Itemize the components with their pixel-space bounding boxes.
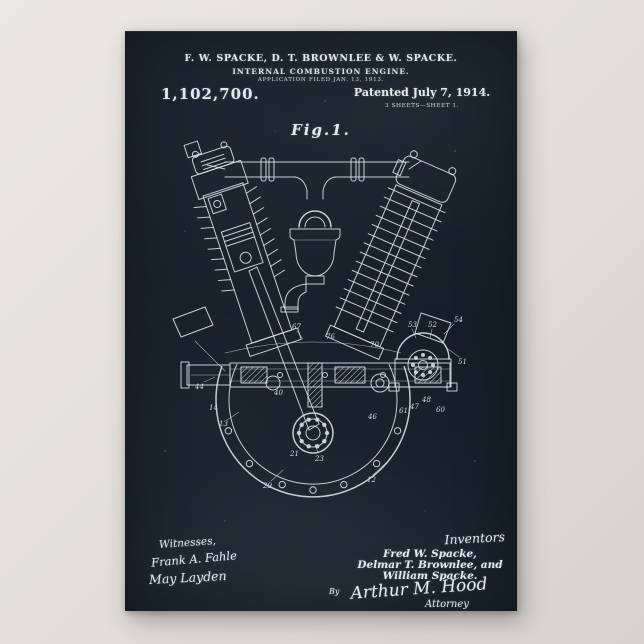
poster-mockup-scene: F. W. SPACKE, D. T. BROWNLEE & W. SPACKE… [0,0,644,644]
svg-text:67: 67 [292,323,301,331]
svg-text:48: 48 [421,396,431,404]
carburetor [281,191,340,312]
svg-text:76: 76 [326,333,335,341]
svg-text:70: 70 [370,341,379,349]
crankpin-bearing [293,413,333,453]
svg-text:46: 46 [367,413,377,421]
svg-text:51: 51 [458,358,467,366]
svg-text:40: 40 [273,389,283,397]
patent-poster: F. W. SPACKE, D. T. BROWNLEE & W. SPACKE… [125,31,517,611]
engine-patent-drawing: 12 13 14 21 23 29 40 44 46 47 48 51 52 [125,31,517,611]
svg-text:21: 21 [289,450,299,458]
right-cylinder [322,146,463,360]
svg-text:23: 23 [314,455,324,463]
svg-text:44: 44 [194,383,204,391]
svg-text:60: 60 [436,406,445,414]
svg-text:54: 54 [454,316,463,324]
svg-text:47: 47 [409,403,419,411]
svg-text:29: 29 [262,482,272,490]
svg-text:52: 52 [428,321,437,329]
svg-text:12: 12 [367,476,376,484]
svg-text:61: 61 [399,407,408,415]
svg-text:14: 14 [209,404,218,412]
svg-text:13: 13 [219,420,228,428]
wrist-pin [239,251,253,265]
attorney-label: Attorney [425,599,469,610]
svg-text:53: 53 [408,321,417,329]
reference-numerals: 12 13 14 21 23 29 40 44 46 47 48 51 52 [194,316,467,490]
